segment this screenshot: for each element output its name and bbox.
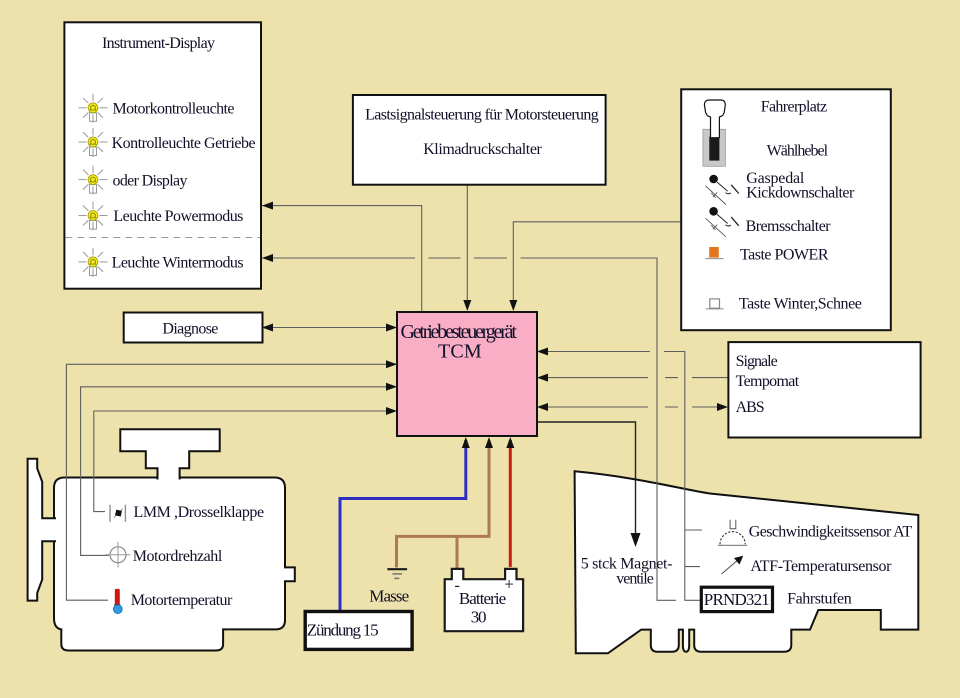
svg-text:Motordrehzahl: Motordrehzahl xyxy=(133,548,223,565)
svg-text:+: + xyxy=(504,575,514,594)
svg-text:Signale: Signale xyxy=(736,353,778,370)
svg-text:Motorkontrolleuchte: Motorkontrolleuchte xyxy=(113,101,235,118)
svg-text:Masse: Masse xyxy=(369,587,409,606)
svg-text:Taste POWER: Taste POWER xyxy=(740,247,829,264)
svg-text:ABS: ABS xyxy=(736,399,765,416)
svg-text:TCM: TCM xyxy=(438,341,482,363)
svg-text:LMM ,Drosselklappe: LMM ,Drosselklappe xyxy=(134,504,265,521)
svg-text:Tempomat: Tempomat xyxy=(736,373,800,390)
svg-text:-: - xyxy=(455,577,460,594)
svg-text:Lastsignalsteuerung für Motors: Lastsignalsteuerung für Motorsteuerung xyxy=(365,107,599,124)
svg-text:Diagnose: Diagnose xyxy=(162,321,218,338)
svg-text:Motortemperatur: Motortemperatur xyxy=(131,592,233,609)
svg-text:Batterie: Batterie xyxy=(459,589,506,608)
svg-text:Fahrerplatz: Fahrerplatz xyxy=(761,99,828,116)
svg-text:Instrument-Display: Instrument-Display xyxy=(102,35,215,52)
svg-text:Leuchte Powermodus: Leuchte Powermodus xyxy=(113,208,243,225)
svg-text:ventile: ventile xyxy=(616,571,654,588)
svg-text:ATF-Temperatursensor: ATF-Temperatursensor xyxy=(750,558,892,575)
svg-text:Fahrstufen: Fahrstufen xyxy=(787,591,852,608)
svg-text:PRND321: PRND321 xyxy=(704,590,770,609)
svg-text:Klimadruckschalter: Klimadruckschalter xyxy=(423,141,542,158)
svg-text:30: 30 xyxy=(471,608,487,627)
svg-text:Kickdownschalter: Kickdownschalter xyxy=(746,185,855,202)
svg-text:Geschwindigkeitssensor AT: Geschwindigkeitssensor AT xyxy=(749,524,913,541)
svg-text:Leuchte Wintermodus: Leuchte Wintermodus xyxy=(112,255,244,272)
svg-text:Wählhebel: Wählhebel xyxy=(767,143,829,160)
svg-text:Zündung 15: Zündung 15 xyxy=(307,621,379,640)
svg-text:oder Display: oder Display xyxy=(113,172,188,189)
svg-text:Taste Winter,Schnee: Taste Winter,Schnee xyxy=(739,296,862,313)
svg-text:Bremsschalter: Bremsschalter xyxy=(746,218,832,235)
svg-text:Kontrolleuchte Getriebe: Kontrolleuchte Getriebe xyxy=(112,135,256,152)
